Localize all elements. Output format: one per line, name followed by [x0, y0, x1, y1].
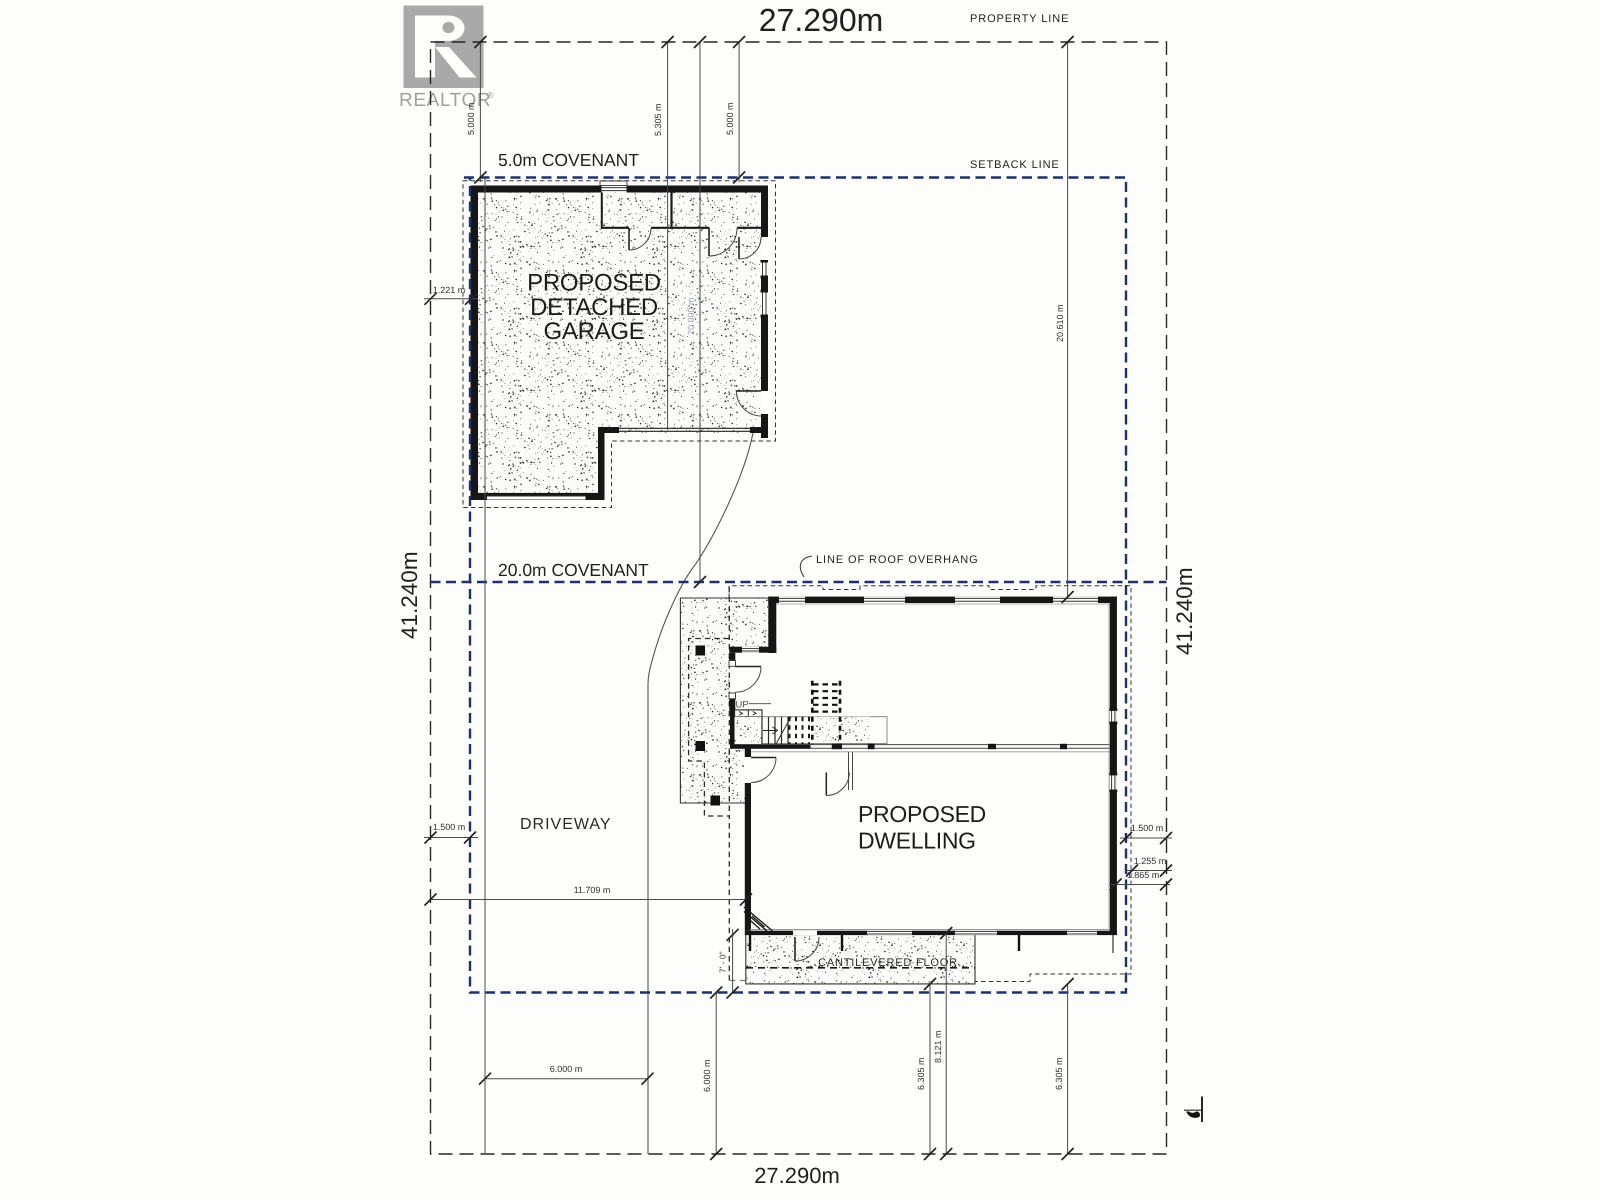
svg-text:6.000 m: 6.000 m — [702, 1059, 712, 1092]
svg-text:1.255 m: 1.255 m — [1134, 856, 1167, 866]
svg-text:PROPOSED: PROPOSED — [858, 801, 986, 827]
svg-text:20.000 m: 20.000 m — [686, 297, 696, 335]
svg-text:41.240m: 41.240m — [397, 551, 422, 639]
svg-text:SETBACK LINE: SETBACK LINE — [970, 159, 1060, 171]
svg-text:DRIVEWAY: DRIVEWAY — [520, 816, 612, 833]
svg-text:5.000 m: 5.000 m — [725, 102, 735, 135]
svg-text:27.290m: 27.290m — [759, 2, 884, 38]
svg-text:6.305 m: 6.305 m — [916, 1057, 926, 1090]
svg-text:1.500 m: 1.500 m — [433, 822, 466, 832]
svg-text:7' - 0": 7' - 0" — [718, 951, 728, 973]
svg-text:27.290m: 27.290m — [754, 1163, 840, 1188]
svg-text:6.305 m: 6.305 m — [1054, 1057, 1064, 1090]
svg-text:1.500 m: 1.500 m — [1131, 823, 1164, 833]
svg-text:5.000 m: 5.000 m — [466, 102, 476, 135]
svg-text:LINE OF ROOF OVERHANG: LINE OF ROOF OVERHANG — [816, 554, 979, 566]
svg-text:DWELLING: DWELLING — [858, 828, 976, 854]
svg-text:20.610 m: 20.610 m — [1055, 304, 1065, 342]
svg-text:1.865 m: 1.865 m — [1127, 870, 1160, 880]
svg-text:REALTOR: REALTOR — [399, 90, 491, 111]
svg-text:11.709 m: 11.709 m — [574, 885, 611, 895]
svg-text:UP: UP — [736, 700, 749, 711]
svg-text:20.0m COVENANT: 20.0m COVENANT — [498, 560, 649, 580]
svg-text:8.121 m: 8.121 m — [933, 1030, 943, 1063]
svg-text:®: ® — [487, 90, 494, 100]
svg-text:PROPERTY LINE: PROPERTY LINE — [970, 13, 1069, 25]
svg-text:PROPOSED: PROPOSED — [527, 270, 661, 297]
svg-text:5.305 m: 5.305 m — [653, 103, 663, 136]
svg-text:CANTILEVERED FLOOR: CANTILEVERED FLOOR — [818, 957, 958, 969]
svg-text:6.000 m: 6.000 m — [550, 1064, 583, 1074]
svg-text:DETACHED: DETACHED — [530, 294, 658, 321]
svg-text:5.0m COVENANT: 5.0m COVENANT — [498, 150, 639, 170]
svg-text:41.240m: 41.240m — [1172, 567, 1197, 655]
svg-text:GARAGE: GARAGE — [544, 318, 645, 345]
svg-text:1.221 m: 1.221 m — [433, 285, 466, 295]
